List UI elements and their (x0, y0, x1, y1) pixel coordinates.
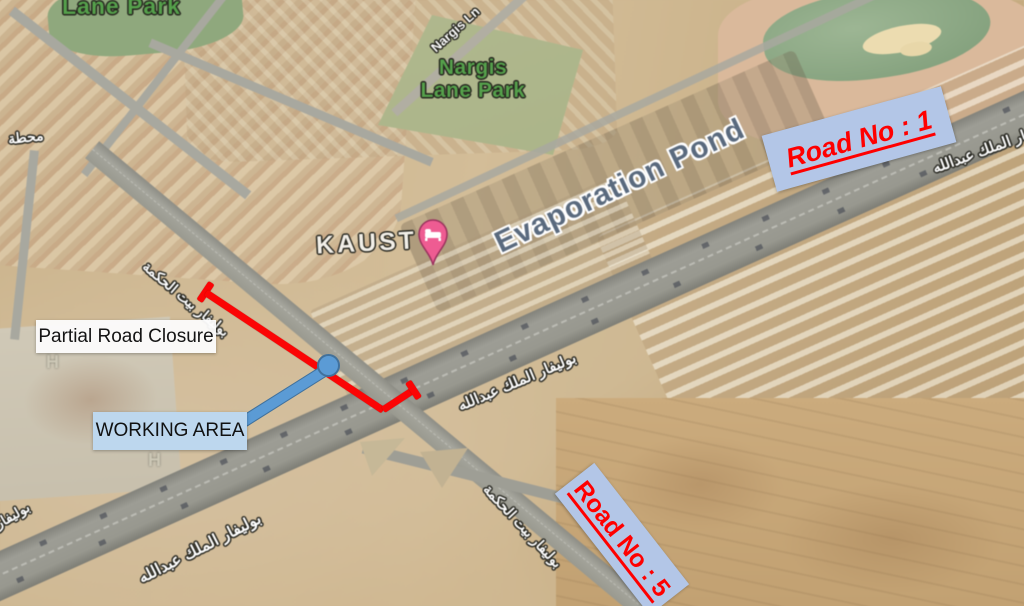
annotation-layer: Road No : 1 Road No : 5 Partial Road Clo… (0, 0, 1024, 606)
working-area-arrow-head (317, 354, 340, 377)
road-no-5-callout: Road No : 5 (555, 463, 689, 606)
map-screenshot: Lane Park Nargis Lane Park Nargis Ln محط… (0, 0, 1024, 606)
road-no-1-callout: Road No : 1 (762, 86, 957, 192)
working-area-callout: WORKING AREA (93, 412, 247, 450)
partial-road-closure-callout: Partial Road Closure (36, 320, 216, 353)
